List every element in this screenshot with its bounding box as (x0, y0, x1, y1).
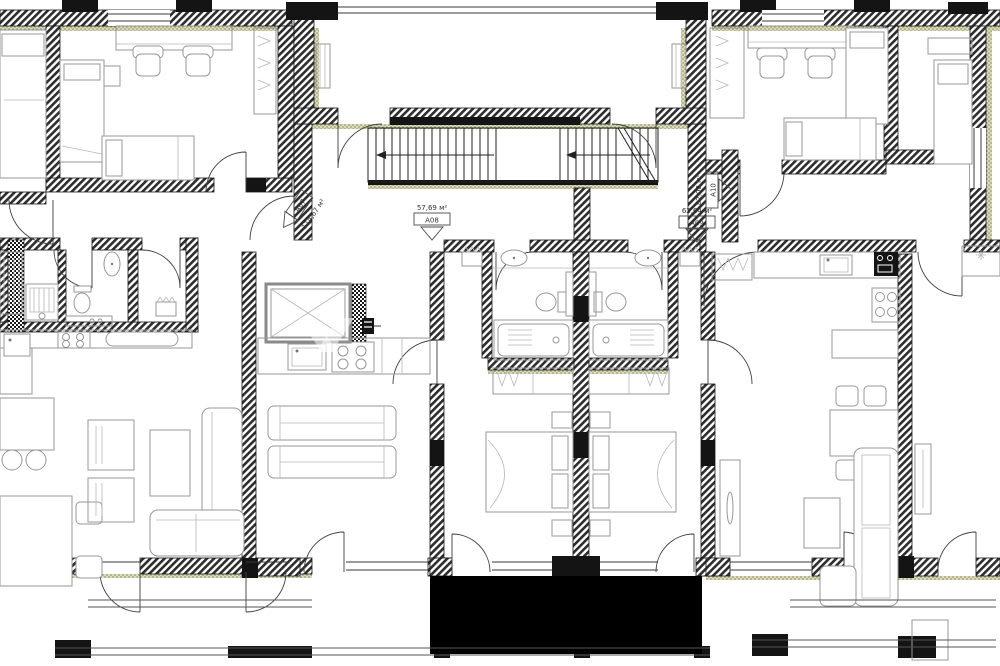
double-bed (589, 432, 676, 512)
toilet (74, 286, 91, 313)
unit-id: A09 (690, 220, 704, 228)
nightstand (552, 520, 572, 536)
bed (102, 136, 194, 180)
bed (784, 118, 876, 160)
unit-id: A08 (425, 217, 439, 225)
sink (104, 252, 120, 276)
chair (76, 502, 102, 524)
sink (501, 250, 527, 266)
dining-table (0, 398, 54, 450)
bed (60, 60, 104, 162)
nightstand (590, 520, 610, 536)
unit-id: A10 (710, 183, 718, 197)
double-bed (486, 432, 573, 512)
bed (846, 28, 888, 124)
bed (934, 60, 972, 164)
window-lightwell-top (338, 6, 656, 14)
chair (26, 450, 46, 470)
nightstand (104, 66, 120, 86)
chair (133, 46, 163, 76)
floor-plan: A07 114,67 м² 57,69 м² A08 62,64 м² A09 … (0, 0, 1000, 666)
nightstand (590, 412, 610, 428)
kitchen-sink (4, 334, 30, 356)
dining-table (0, 496, 72, 586)
oven (874, 252, 898, 276)
chair (864, 386, 886, 406)
unit-area: 82,08 м² (695, 175, 703, 206)
chair (76, 556, 102, 578)
counter-table (106, 332, 178, 346)
kitchen-sink (820, 255, 852, 275)
unit-area: 57,69 м² (417, 204, 448, 212)
toilet (594, 292, 626, 312)
chair (183, 46, 213, 76)
nightstand (552, 412, 572, 428)
balcony-slab (430, 576, 702, 654)
bed (0, 30, 46, 178)
toilet (536, 292, 566, 312)
sink (635, 250, 661, 266)
chair (2, 450, 22, 470)
sofa (268, 406, 396, 440)
sofa (268, 446, 396, 478)
window-top-right (762, 10, 824, 26)
window-top-left (108, 10, 170, 26)
chair (805, 48, 835, 78)
chair (757, 48, 787, 78)
chair (836, 386, 858, 406)
